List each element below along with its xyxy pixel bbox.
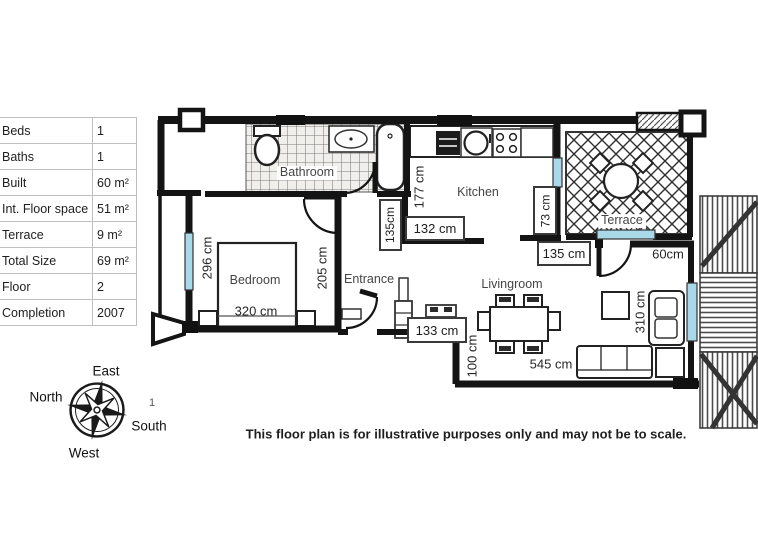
kitchen-sink-icon xyxy=(465,132,488,155)
dim-terrace-passage: 135 cm xyxy=(537,241,591,266)
dining-table xyxy=(490,307,548,341)
vent-block xyxy=(276,115,305,125)
dim-hall-width: 135cm xyxy=(379,199,402,251)
wall-unit xyxy=(342,309,361,319)
dim-kitchen-depth: 177 cm xyxy=(412,166,427,209)
vent-block xyxy=(437,115,472,126)
sofa-icon xyxy=(577,346,652,378)
compass-label-south: South xyxy=(131,419,166,434)
dim-kitchen-width: 132 cm xyxy=(405,216,465,241)
sideboard-detail xyxy=(444,307,452,312)
dim-bedroom-width: 320 cm xyxy=(235,304,278,319)
nightstand xyxy=(199,311,217,326)
compass-label-east: East xyxy=(92,364,119,379)
room-label-bathroom: Bathroom xyxy=(277,166,337,180)
bathroom-area xyxy=(246,124,408,192)
kitchen-cabinet xyxy=(521,128,553,157)
dim-living-width: 545 cm xyxy=(530,357,573,372)
kitchen-area xyxy=(410,126,554,157)
sink-drain xyxy=(349,137,352,140)
compass-label-west: West xyxy=(69,446,100,461)
livingroom-window xyxy=(687,283,697,341)
angled-wall xyxy=(153,314,184,344)
entrance-door-leaf xyxy=(360,291,377,296)
sideboard-detail xyxy=(430,307,438,312)
compass-label-north: North xyxy=(29,390,62,405)
floorplan-page: Beds1 Baths1 Built60 m² Int. Floor space… xyxy=(0,0,758,534)
chair-back xyxy=(499,346,511,351)
dim-kitchen-passage: 73 cm xyxy=(533,186,557,235)
terrace-table xyxy=(604,164,638,198)
exterior-stairs xyxy=(700,196,757,428)
chair-back xyxy=(527,297,539,302)
wall-block xyxy=(673,378,698,389)
stove-icon xyxy=(493,129,521,157)
armchair-cushion xyxy=(655,319,677,338)
dim-hall-depth: 205 cm xyxy=(315,247,330,290)
dining-chair xyxy=(548,312,560,330)
room-label-kitchen: Kitchen xyxy=(457,185,499,199)
room-label-terrace: Terrace xyxy=(598,214,646,228)
room-label-bedroom: Bedroom xyxy=(230,273,281,287)
dim-terrace-door: 60cm xyxy=(652,247,684,262)
pillar xyxy=(180,110,203,130)
chair-back xyxy=(527,346,539,351)
kitchen-window xyxy=(553,158,562,187)
room-label-livingroom: Livingroom xyxy=(481,277,542,291)
armchair-cushion xyxy=(655,298,677,317)
bedroom-window xyxy=(185,233,193,290)
compass-stray-mark: 1 xyxy=(149,397,155,409)
tv-table xyxy=(602,292,629,319)
dining-chair xyxy=(478,312,490,330)
terrace-slider-door xyxy=(597,230,655,239)
compass-rose xyxy=(53,366,141,454)
terrace-door-arc xyxy=(599,244,631,276)
corner-pillar xyxy=(681,112,704,135)
dim-living-depth: 310 cm xyxy=(633,291,648,334)
dim-kitchen-passage-text: 73 cm xyxy=(538,194,552,227)
wall-block xyxy=(182,321,198,333)
livingroom-area xyxy=(478,291,684,378)
dim-hall-width-text: 135cm xyxy=(384,207,398,243)
dim-entrance-unit: 133 cm xyxy=(407,317,467,343)
disclaimer-text: This floor plan is for illustrative purp… xyxy=(246,427,687,442)
bedroom-door-arc xyxy=(304,199,338,233)
oven-icon xyxy=(436,131,460,155)
room-label-entrance: Entrance xyxy=(344,272,394,286)
side-table xyxy=(656,348,684,377)
hall-shelf xyxy=(399,278,408,301)
dim-bedroom-depth: 296 cm xyxy=(200,237,215,280)
toilet-icon xyxy=(255,135,279,165)
lintel-hatch xyxy=(637,113,680,130)
chair-back xyxy=(499,297,511,302)
nightstand xyxy=(297,311,315,326)
